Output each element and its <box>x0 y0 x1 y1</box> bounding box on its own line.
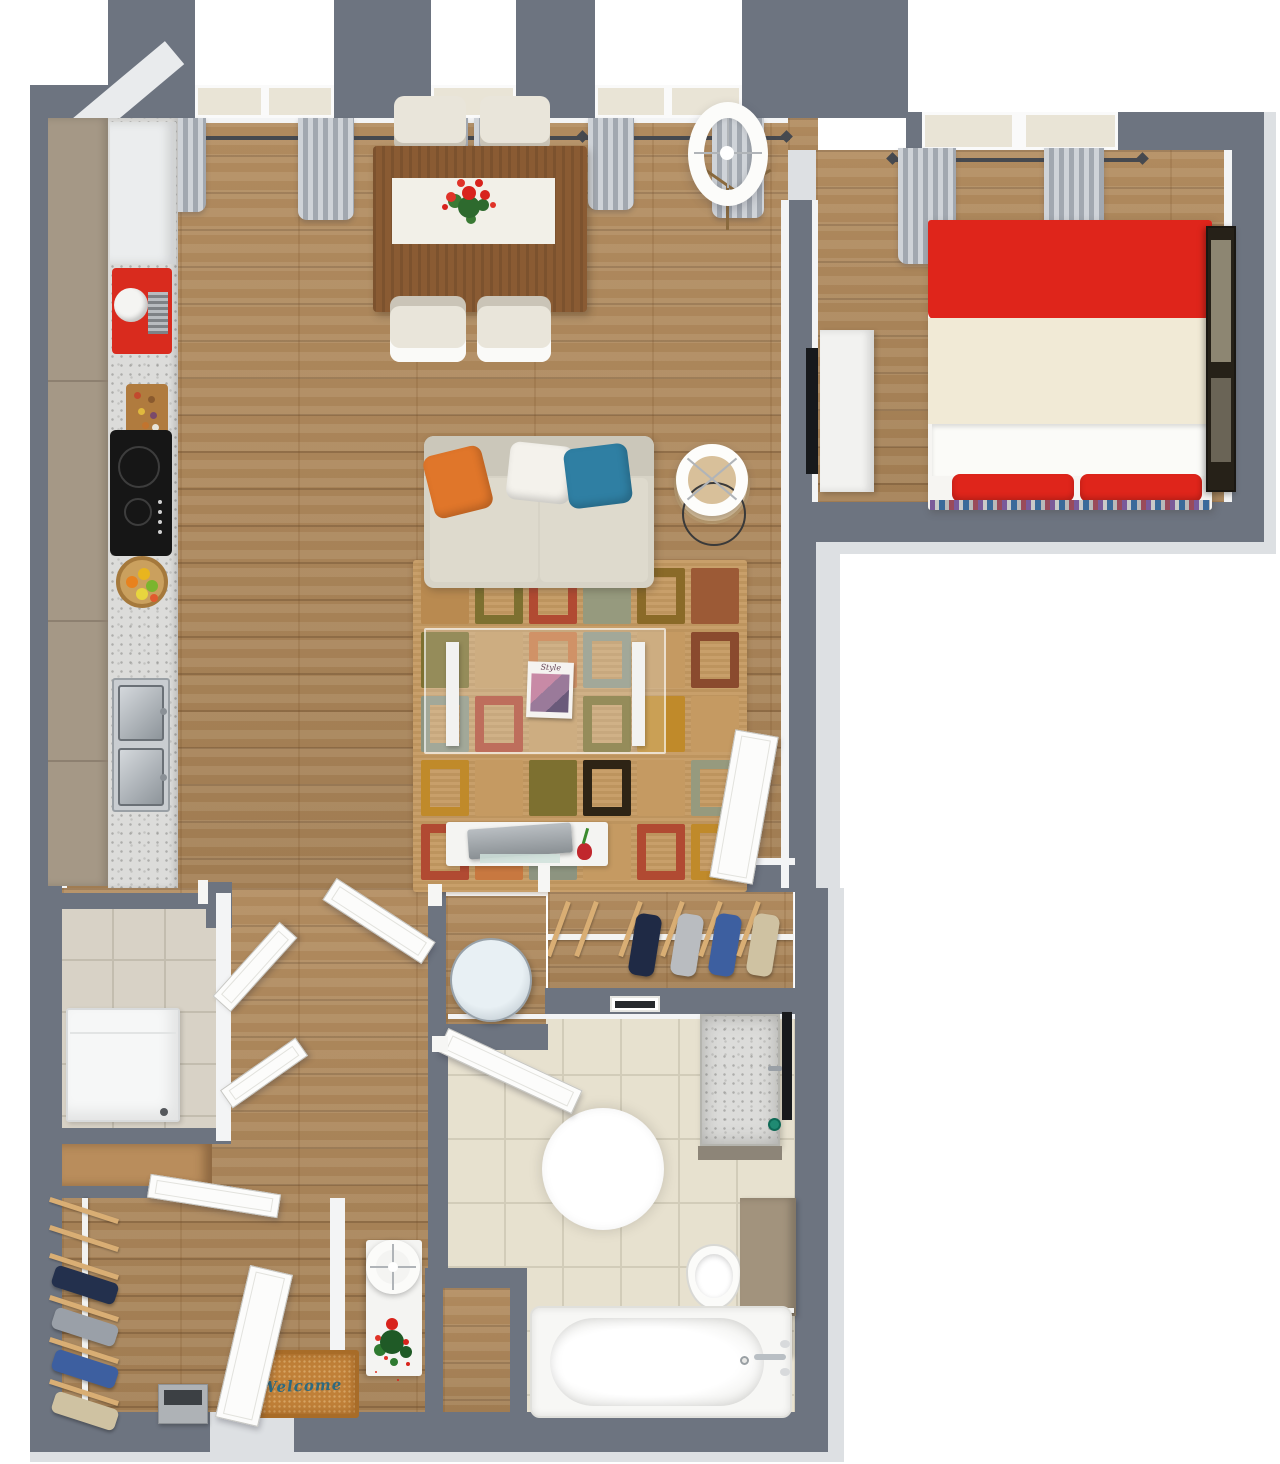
bottom-outer-wall <box>30 1412 842 1452</box>
outer-edge-east-wing <box>816 554 840 888</box>
curtain-panel <box>298 118 354 220</box>
bedroom-threshold <box>788 150 816 200</box>
outer-edge-right-bedroom <box>1264 112 1276 554</box>
kitchen-cabinet-divider <box>48 760 110 762</box>
magazine: Style <box>526 661 574 719</box>
door-jamb <box>198 880 208 904</box>
bathroom-top-wall <box>545 988 795 1014</box>
coffee-machine-knob <box>114 288 148 322</box>
dining-chair <box>390 296 466 362</box>
door-jamb <box>538 865 550 892</box>
entry-plant <box>362 1300 426 1384</box>
cutting-board <box>126 384 168 434</box>
clothes-hanger <box>574 901 599 957</box>
bedroom-dresser <box>820 330 874 492</box>
coffee-table-frame <box>632 642 645 746</box>
bed-cover-cream <box>928 318 1212 424</box>
flower-centerpiece-blooms <box>462 186 476 200</box>
throw-pillow-blue <box>563 442 634 509</box>
dining-chair <box>477 296 551 362</box>
towel-radiator <box>610 996 660 1012</box>
outer-edge-bottom <box>30 1452 842 1462</box>
laundry-bottom-wall <box>49 1128 231 1144</box>
cooktop-controls <box>158 500 162 504</box>
floor-plan-canvas: Style <box>0 0 1280 1464</box>
sink-faucet <box>768 1066 782 1071</box>
bed-blanket-red <box>928 220 1212 320</box>
floor-lamp <box>670 90 790 250</box>
bathtub-handle <box>780 1368 790 1376</box>
kitchen-sink <box>112 678 170 812</box>
dining-chair <box>480 96 550 152</box>
throw-pillow-white <box>505 441 575 505</box>
toilet-seat <box>695 1254 733 1298</box>
fruit-bowl <box>116 556 168 608</box>
bathroom-cabinet <box>740 1198 796 1316</box>
bedroom-window-mullion <box>1012 112 1026 150</box>
dining-chair <box>394 96 466 152</box>
fruit <box>126 576 138 588</box>
bathtub-basin <box>550 1318 764 1406</box>
bed-pillow-red <box>1080 474 1202 502</box>
sink-basin-bottom <box>118 748 164 806</box>
sink-faucet <box>160 708 167 715</box>
cutting-board-food <box>134 392 141 399</box>
cooktop-burner-large <box>118 446 160 488</box>
floor-lamp-bulb <box>720 146 734 160</box>
bathtub-drain <box>740 1356 749 1365</box>
bedroom-tv <box>806 348 818 474</box>
rug-cell <box>475 760 523 816</box>
door-jamb <box>432 1036 448 1052</box>
sink-basin-top <box>118 685 164 741</box>
entry-lamp-bulb <box>388 1262 398 1272</box>
soap-dish <box>768 1118 781 1131</box>
bathroom-west-wall <box>428 1048 448 1272</box>
kitchen-tall-unit <box>110 122 176 264</box>
washing-machine <box>66 1008 180 1122</box>
kitchen-cabinet-run <box>48 118 110 886</box>
bathroom-mirror-edge <box>782 1012 792 1120</box>
entry-niche-floor <box>443 1288 510 1412</box>
window-1-mullion <box>261 85 269 118</box>
plant-leaves <box>380 1330 404 1354</box>
kitchen-cabinet-divider <box>48 620 110 622</box>
bathtub-handle <box>780 1340 790 1348</box>
rug-cell <box>583 760 631 816</box>
bed-deco-runner <box>930 500 1210 510</box>
side-table <box>660 434 760 554</box>
magazine-title: Style <box>528 662 574 674</box>
plant-flowers <box>386 1318 398 1330</box>
rug-cell <box>637 824 685 880</box>
bathtub-faucet <box>754 1354 786 1360</box>
kitchen-cabinet-divider <box>48 380 110 382</box>
door-jamb <box>428 884 442 906</box>
outer-edge-right-bath <box>828 888 844 1462</box>
curtain-panel <box>588 118 634 210</box>
washer-panel-seam <box>70 1032 176 1034</box>
bathtub <box>530 1306 792 1418</box>
coffee-machine <box>112 268 172 354</box>
bath-right-outer-wall <box>795 888 828 1412</box>
tv-glass-shelf <box>480 854 560 863</box>
rug-cell <box>691 632 739 688</box>
bed-sheet-fold <box>932 424 1208 476</box>
outer-edge-below-bedroom <box>816 542 1276 554</box>
bath-round-rug <box>542 1108 664 1230</box>
rug-cell <box>637 760 685 816</box>
cooktop-burner-small <box>124 498 152 526</box>
entry-niche-right-wall <box>510 1287 527 1414</box>
rug-cell <box>421 760 469 816</box>
east-wall-inner-face <box>781 200 789 888</box>
shoe-bench-top <box>164 1390 202 1405</box>
rug-cell <box>691 568 739 624</box>
hall-closet <box>548 892 793 988</box>
bedroom-top-wall-left <box>906 112 922 150</box>
coffee-machine-grill <box>148 292 168 334</box>
rug-cell <box>529 760 577 816</box>
washer-knob <box>160 1108 168 1116</box>
entry-lamp <box>364 1238 424 1298</box>
console-vase <box>577 843 592 860</box>
entry-niche-left-wall <box>425 1268 443 1416</box>
bed-pillow-red <box>952 474 1074 502</box>
wall-art-frame <box>1206 226 1236 492</box>
towel-radiator-bar <box>615 1001 655 1008</box>
magazine-cover-image <box>530 673 569 712</box>
vanity-base-shadow <box>698 1146 782 1160</box>
cooktop <box>110 430 172 556</box>
laundry-hamper-cylinder <box>450 938 532 1022</box>
wall-art-image <box>1211 378 1231 462</box>
shoe-bench <box>158 1384 208 1424</box>
coffee-table-frame <box>446 642 459 746</box>
wall-art-image <box>1211 240 1231 362</box>
clothes-hanger <box>548 901 571 957</box>
